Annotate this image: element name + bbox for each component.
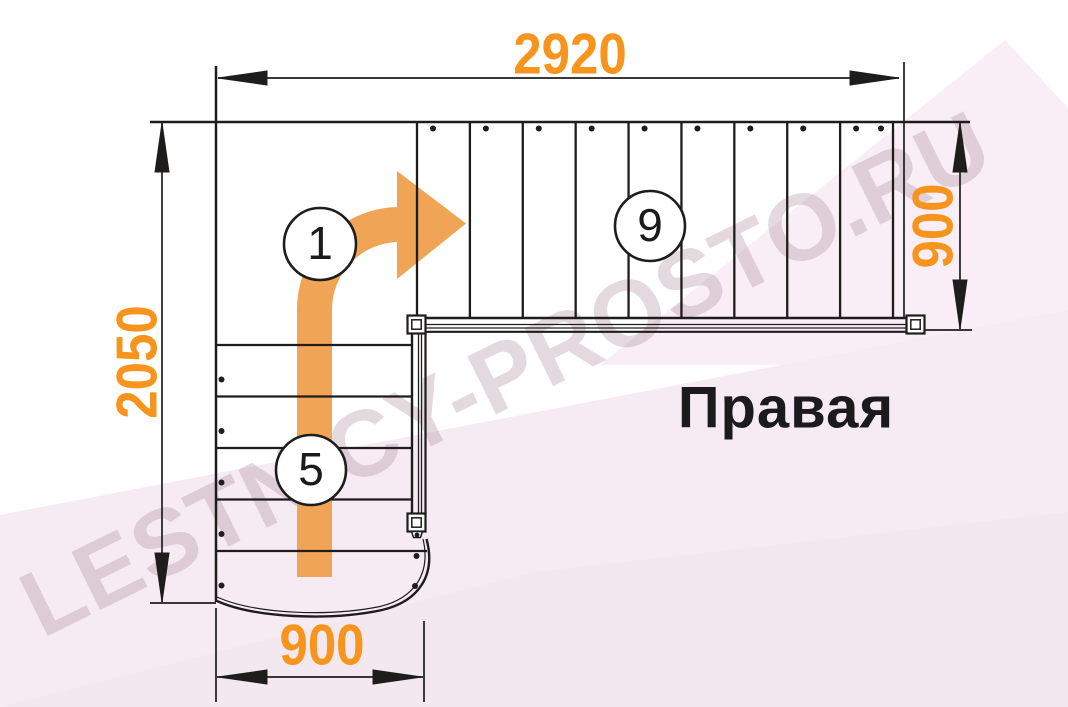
dimension-top-label: 2920 (513, 21, 626, 87)
step-number-lower-flight: 5 (298, 442, 324, 496)
tread-dot (853, 126, 859, 132)
tread-dot (219, 480, 225, 486)
tread-dot (747, 126, 753, 132)
tread-dot (642, 126, 648, 132)
tread-dot (219, 428, 225, 434)
dimension-left-label: 2050 (104, 305, 170, 418)
dimension-bottom-label: 900 (279, 612, 364, 678)
tread-dot (219, 377, 225, 383)
plan-outline (150, 66, 970, 602)
tread-dot (878, 126, 884, 132)
tread-dot (694, 126, 700, 132)
dimension-right-label: 900 (900, 183, 966, 268)
staircase-plan-diagram: LESTNICY-PROSTO.RU (0, 0, 1068, 707)
tread-dot (483, 126, 489, 132)
tread-dot (589, 126, 595, 132)
tread-dot (219, 531, 225, 537)
step-number-start: 1 (307, 216, 333, 270)
step-number-upper-flight: 9 (637, 198, 663, 252)
stair-side-label: Правая (678, 375, 894, 442)
step-number-circles (276, 191, 685, 505)
tread-dot (536, 126, 542, 132)
tread-dot (219, 583, 225, 589)
tread-dot (430, 126, 436, 132)
tread-dot (800, 126, 806, 132)
direction-arrowhead (397, 171, 466, 279)
